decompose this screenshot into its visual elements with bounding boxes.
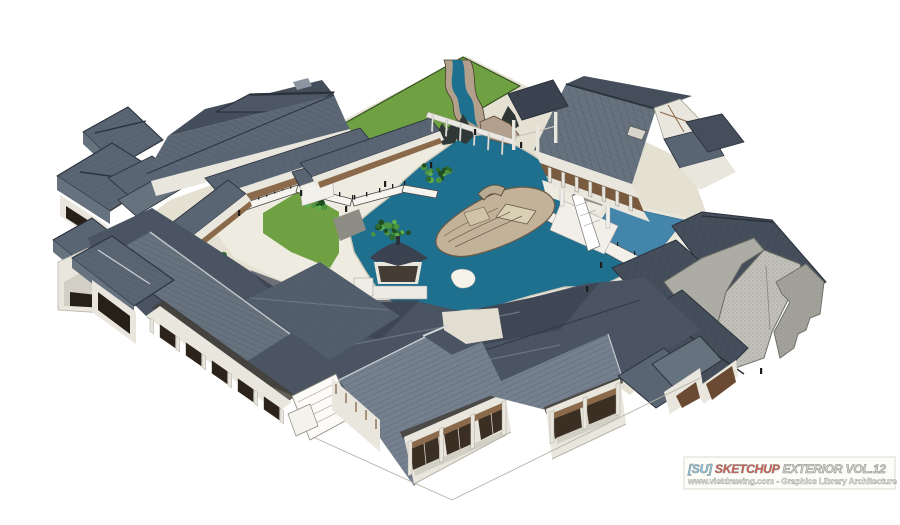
svg-text:[SU]SKETCHUPEXTERIOR VOL.12: [SU]SKETCHUPEXTERIOR VOL.12 — [687, 462, 886, 476]
svg-text:www.vietdrawing.com - Graphics: www.vietdrawing.com - Graphics Library A… — [687, 476, 897, 486]
